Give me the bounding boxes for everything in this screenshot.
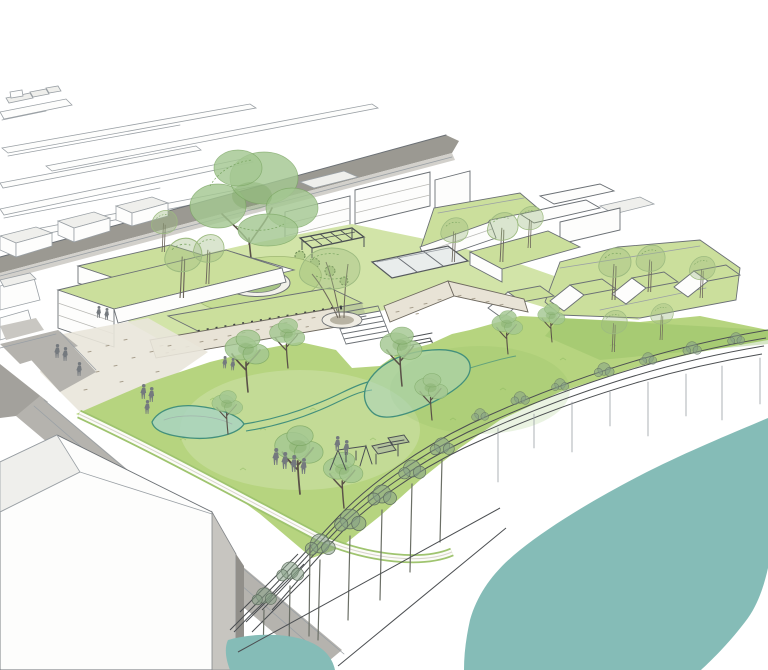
rendering-canvas	[0, 0, 768, 670]
train	[0, 86, 72, 120]
river-main	[464, 418, 768, 670]
site-plan-rendering	[0, 0, 768, 670]
